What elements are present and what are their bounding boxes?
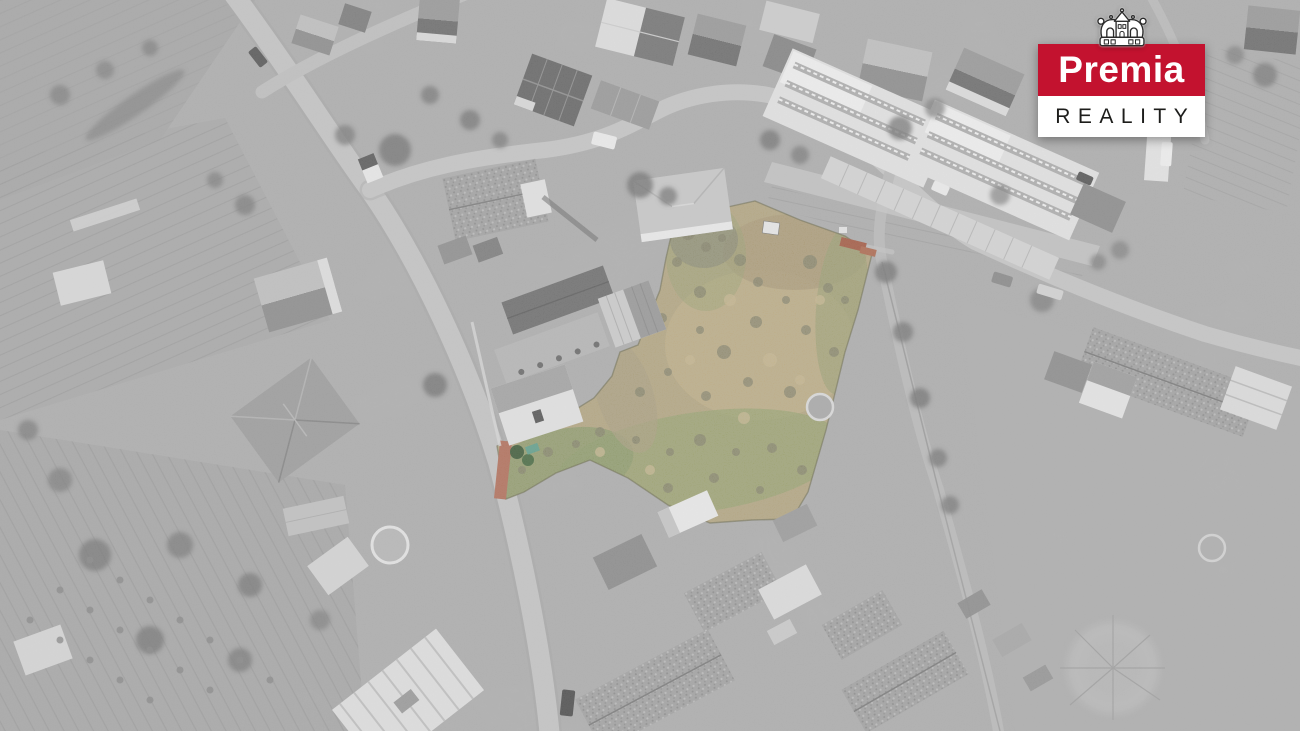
logo-brand-text: Premia — [1058, 49, 1184, 91]
logo-subtitle-text: REALITY — [1055, 105, 1195, 129]
logo-brand: Premia — [1038, 44, 1205, 96]
logo-boxes: Premia REALITY — [1038, 44, 1205, 137]
aerial-photo: Premia REALITY — [0, 0, 1300, 731]
crown-house-icon — [1095, 5, 1149, 51]
premia-reality-logo: Premia REALITY — [1038, 5, 1205, 137]
logo-subtitle: REALITY — [1038, 96, 1205, 137]
